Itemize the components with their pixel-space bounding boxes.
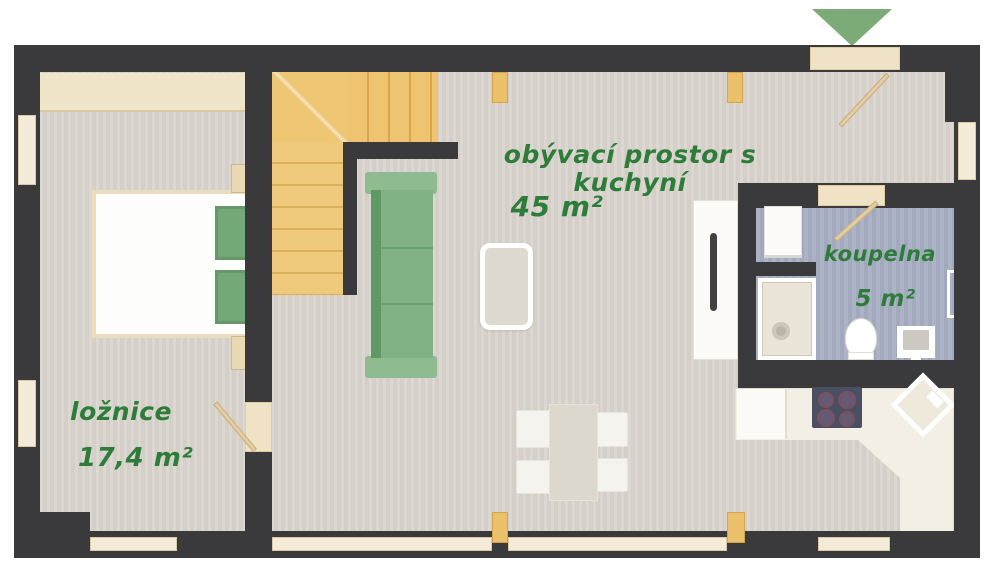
wardrobe <box>40 73 250 112</box>
wood-post <box>492 512 508 543</box>
floor-plan: obývací prostor s kuchyní 45 m² koupelna… <box>0 0 998 580</box>
washing-machine <box>764 206 802 258</box>
bathroom-sink-faucet <box>911 350 921 360</box>
bedroom-area: 17,4 m² <box>78 444 208 473</box>
wall-corner-bottom-left <box>14 512 90 558</box>
wall-corner-top-right <box>945 45 980 122</box>
cooktop-burner <box>838 391 856 409</box>
cabinet-handle <box>710 233 717 311</box>
living-room-label: obývací prostor s kuchyní <box>450 141 810 196</box>
cooktop-burner <box>818 392 834 408</box>
bathroom-sink-basin <box>903 330 929 350</box>
stair-landing <box>272 72 348 142</box>
entrance-door-opening <box>810 47 900 70</box>
cooktop-burner <box>817 409 835 427</box>
dining-chair <box>516 410 552 448</box>
window-bottom-living-2 <box>508 537 727 551</box>
stairs-lower-flight <box>272 142 348 295</box>
kitchen-cabinet <box>737 389 787 439</box>
stair-wall-vertical <box>343 142 357 295</box>
stair-wall-horizontal <box>343 142 458 159</box>
sofa-backrest <box>371 190 381 358</box>
stairs-upper-flight <box>348 72 438 142</box>
sofa-cushion-divider <box>381 247 433 249</box>
shower-drain <box>772 322 790 340</box>
window-bottom-living-3 <box>818 537 890 551</box>
shower <box>758 278 816 360</box>
window-right <box>958 122 976 180</box>
entrance-arrow-icon <box>812 9 892 46</box>
toilet-tank <box>848 352 874 360</box>
dining-table <box>549 404 598 501</box>
bathroom-wall-left <box>738 183 756 388</box>
wood-post <box>492 72 508 103</box>
bathroom-area: 5 m² <box>843 287 928 312</box>
wood-post <box>727 72 743 103</box>
dining-chair <box>516 460 552 494</box>
bathroom-partition-stub <box>756 262 816 276</box>
window-left-upper <box>18 115 36 185</box>
wood-post <box>727 512 745 543</box>
cooktop-burner <box>839 411 855 427</box>
bathroom-label: koupelna <box>815 243 945 266</box>
coffee-table <box>480 243 533 330</box>
window-bottom-living-1 <box>272 537 492 551</box>
bedroom-label: ložnice <box>70 398 190 426</box>
sofa-cushion-divider <box>381 303 433 305</box>
window-left-lower <box>18 380 36 447</box>
sofa-armrest <box>365 356 437 378</box>
bedroom-partition-upper <box>245 72 272 402</box>
bedroom-partition-lower <box>245 452 272 531</box>
window-bottom-bedroom <box>90 537 177 551</box>
living-room-area: 45 m² <box>492 192 622 223</box>
